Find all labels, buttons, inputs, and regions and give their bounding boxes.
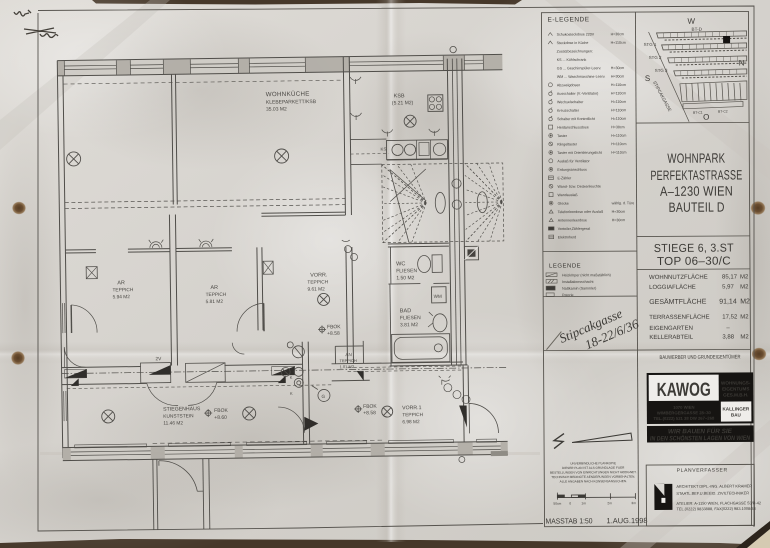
svg-text:TEL.(0222) 521 38 DW 267–268: TEL.(0222) 521 38 DW 267–268 bbox=[654, 416, 715, 421]
svg-text:H=110cm: H=110cm bbox=[611, 100, 626, 104]
svg-text:G: G bbox=[321, 394, 325, 399]
svg-text:Schukosteckdose 220V: Schukosteckdose 220V bbox=[557, 32, 595, 36]
svg-text:Zusatzbezeichnungen:: Zusatzbezeichnungen: bbox=[557, 49, 593, 53]
svg-text:Telefonleerdose oder Auslaß: Telefonleerdose oder Auslaß bbox=[558, 210, 604, 214]
svg-text:BT-D: BT-D bbox=[692, 27, 703, 32]
svg-text:ARCHITEKT DIPL.-ING. ALBERT KR: ARCHITEKT DIPL.-ING. ALBERT KRAMER bbox=[676, 483, 752, 488]
svg-text:TEPPICH: TEPPICH bbox=[206, 292, 227, 298]
svg-text:H=30cm: H=30cm bbox=[611, 125, 625, 129]
svg-text:WOHNUNGS-: WOHNUNGS- bbox=[721, 380, 751, 385]
svg-text:A–1230 WIEN: A–1230 WIEN bbox=[660, 183, 733, 198]
svg-text:KS ... Kühlschrank: KS ... Kühlschrank bbox=[557, 58, 587, 62]
svg-text:H=110cm: H=110cm bbox=[611, 41, 626, 45]
svg-text:EIGENGARTEN: EIGENGARTEN bbox=[649, 326, 693, 332]
svg-text:E-LEGENDE: E-LEGENDE bbox=[547, 16, 589, 23]
svg-text:PERFEKTASTRASSE: PERFEKTASTRASSE bbox=[650, 167, 742, 183]
svg-text:0: 0 bbox=[569, 501, 571, 505]
svg-text:H=30cm: H=30cm bbox=[612, 210, 626, 214]
svg-text:50cm: 50cm bbox=[553, 502, 561, 506]
svg-text:E-Zähler: E-Zähler bbox=[557, 176, 572, 180]
svg-text:GS ... Geschirrspüler-Leerv.: GS ... Geschirrspüler-Leerv. bbox=[557, 66, 601, 70]
svg-text:5.94 M2: 5.94 M2 bbox=[113, 294, 131, 300]
svg-text:Taster mit Orientierungslicht: Taster mit Orientierungslicht bbox=[557, 151, 602, 155]
svg-text:3,88: 3,88 bbox=[722, 334, 734, 340]
svg-text:Elektroherd: Elektroherd bbox=[558, 235, 576, 239]
svg-text:H=110cm: H=110cm bbox=[611, 117, 626, 121]
svg-text:WIMBERGERGASSE 28–30: WIMBERGERGASSE 28–30 bbox=[657, 410, 712, 415]
svg-text:BAU: BAU bbox=[731, 412, 742, 417]
svg-text:Auslaß für Ventilator: Auslaß für Ventilator bbox=[557, 159, 590, 163]
svg-text:91,14: 91,14 bbox=[719, 298, 737, 305]
svg-text:K: K bbox=[290, 375, 293, 380]
svg-text:VORR.1: VORR.1 bbox=[402, 405, 422, 411]
svg-text:35.03 M2: 35.03 M2 bbox=[266, 106, 287, 112]
svg-text:Klingeltaster: Klingeltaster bbox=[557, 142, 578, 146]
svg-text:WOHNNUTZFLÄCHE: WOHNNUTZFLÄCHE bbox=[649, 274, 708, 281]
svg-text:(5.21 M2): (5.21 M2) bbox=[392, 100, 414, 106]
svg-text:KUNSTSTEIN: KUNSTSTEIN bbox=[163, 413, 194, 419]
svg-text:+8.58: +8.58 bbox=[363, 410, 376, 416]
svg-text:Heizkörper (nicht maßstäblich): Heizkörper (nicht maßstäblich) bbox=[562, 273, 611, 277]
svg-text:O: O bbox=[703, 113, 709, 122]
svg-text:85,17: 85,17 bbox=[722, 274, 738, 280]
svg-text:2m: 2m bbox=[607, 501, 612, 505]
svg-text:FBOK: FBOK bbox=[327, 324, 341, 330]
svg-text:1070 WIEN: 1070 WIEN bbox=[673, 405, 694, 410]
svg-text:H=30cm: H=30cm bbox=[611, 66, 625, 70]
svg-text:GES.M.B.H.: GES.M.B.H. bbox=[723, 392, 748, 397]
svg-text:STIEGENHAUS: STIEGENHAUS bbox=[163, 406, 201, 413]
svg-text:BAUWERBER UND GRUNDEIGENTÜME: BAUWERBER UND GRUNDEIGENTÜMER bbox=[660, 353, 741, 360]
svg-text:17,52: 17,52 bbox=[722, 314, 738, 320]
svg-text:LOGGIAFLÄCHE: LOGGIAFLÄCHE bbox=[649, 284, 696, 291]
svg-text:WOHNKÜCHE: WOHNKÜCHE bbox=[266, 91, 310, 99]
svg-text:Verteiler,Zählergerat: Verteiler,Zählergerat bbox=[558, 227, 590, 231]
svg-text:11.46 M2: 11.46 M2 bbox=[163, 420, 183, 426]
svg-text:BT-C2: BT-C2 bbox=[718, 110, 728, 114]
svg-text:H=110cm: H=110cm bbox=[611, 142, 626, 146]
svg-text:H=110cm: H=110cm bbox=[611, 134, 626, 138]
svg-text:K: K bbox=[290, 391, 293, 396]
svg-text:Wandauslaß: Wandauslaß bbox=[558, 193, 579, 197]
svg-text:6.98 M2: 6.98 M2 bbox=[402, 419, 420, 425]
svg-text:PLANVERFASSER: PLANVERFASSER bbox=[677, 468, 728, 474]
svg-text:TEPPICH: TEPPICH bbox=[339, 358, 357, 363]
svg-text:Naßkamin (Sammler): Naßkamin (Sammler) bbox=[562, 286, 596, 290]
svg-text:Installationsschacht: Installationsschacht bbox=[562, 280, 593, 284]
svg-text:STIEGE 6, 3.ST: STIEGE 6, 3.ST bbox=[654, 242, 734, 254]
svg-text:ALLE ANGABEN NACH KONSENSANSUC: ALLE ANGABEN NACH KONSENSANSUCHEN. bbox=[560, 479, 627, 483]
svg-text:3.81 M2: 3.81 M2 bbox=[400, 322, 418, 328]
svg-text:KSB: KSB bbox=[394, 93, 405, 99]
svg-text:1m: 1m bbox=[581, 501, 586, 505]
svg-text:WM ... Waschmaschine-Leerv.: WM ... Waschmaschine-Leerv. bbox=[557, 75, 606, 79]
svg-text:FBOK: FBOK bbox=[214, 408, 228, 414]
svg-text:Steckdose in Küche: Steckdose in Küche bbox=[557, 41, 589, 45]
svg-text:H=110cm: H=110cm bbox=[611, 108, 626, 112]
svg-text:1.01 M2: 1.01 M2 bbox=[340, 364, 355, 369]
svg-text:GESÄMTFLÄCHE: GESÄMTFLÄCHE bbox=[649, 298, 707, 306]
svg-text:BT-C1: BT-C1 bbox=[693, 111, 703, 115]
svg-text:KELLERABTEIL: KELLERABTEIL bbox=[649, 335, 693, 341]
svg-text:W: W bbox=[687, 17, 695, 26]
svg-text:KAWOG: KAWOG bbox=[657, 380, 711, 401]
svg-text:M2: M2 bbox=[740, 284, 749, 290]
svg-text:5.81 M2: 5.81 M2 bbox=[206, 299, 224, 305]
svg-text:Wand- bzw. Deckenleuchte: Wand- bzw. Deckenleuchte bbox=[557, 184, 600, 188]
svg-text:H=110cm: H=110cm bbox=[611, 91, 626, 95]
svg-text:TERRASSENFLÄCHE: TERRASSENFLÄCHE bbox=[649, 314, 709, 321]
svg-text:BAD: BAD bbox=[400, 308, 412, 314]
svg-text:M2: M2 bbox=[740, 334, 749, 340]
svg-text:TOP 06–30/C: TOP 06–30/C bbox=[657, 256, 731, 268]
svg-text:M2: M2 bbox=[740, 298, 750, 305]
svg-text:Abzweigdosen: Abzweigdosen bbox=[557, 83, 580, 87]
svg-text:Herdanschlussdose: Herdanschlussdose bbox=[557, 125, 589, 129]
svg-text:TEL.(0222) 9833888, FAX(0222): TEL.(0222) 9833888, FAX(0222) 983.1008/3… bbox=[676, 506, 755, 511]
svg-text:TEPPICH: TEPPICH bbox=[112, 287, 133, 293]
svg-text:+8.60: +8.60 bbox=[214, 415, 227, 421]
svg-text:AR: AR bbox=[210, 285, 218, 291]
svg-text:1.50 M2: 1.50 M2 bbox=[396, 275, 414, 281]
svg-text:wählg. d. Türe: wählg. d. Türe bbox=[612, 201, 635, 205]
svg-text:H=110cm: H=110cm bbox=[611, 151, 626, 155]
svg-text:M2: M2 bbox=[740, 314, 749, 320]
svg-text:5,97: 5,97 bbox=[722, 284, 734, 290]
svg-text:Glocke: Glocke bbox=[558, 202, 569, 206]
svg-text:H=30cm: H=30cm bbox=[611, 32, 625, 36]
svg-text:WC: WC bbox=[396, 261, 405, 267]
svg-text:KS: KS bbox=[380, 147, 386, 152]
svg-text:TEPPICH: TEPPICH bbox=[307, 279, 328, 285]
svg-text:MASSTAB 1:50: MASSTAB 1:50 bbox=[546, 516, 593, 525]
svg-text:H=30cm: H=30cm bbox=[612, 218, 626, 222]
svg-text:AR: AR bbox=[117, 280, 125, 286]
svg-text:FBOK: FBOK bbox=[363, 404, 377, 410]
svg-text:Erdungsanschluss: Erdungsanschluss bbox=[557, 168, 587, 172]
svg-text:VORR.: VORR. bbox=[310, 272, 327, 278]
svg-text:AN: AN bbox=[345, 352, 351, 357]
svg-text:Taster: Taster bbox=[557, 134, 568, 138]
svg-text:+8.58: +8.58 bbox=[327, 331, 340, 337]
svg-text:WM: WM bbox=[434, 294, 442, 299]
svg-text:BAUTEIL D: BAUTEIL D bbox=[669, 200, 725, 215]
svg-text:FLIESEN: FLIESEN bbox=[396, 268, 417, 274]
svg-text:2V: 2V bbox=[155, 356, 162, 362]
svg-text:Wechselschalter: Wechselschalter bbox=[557, 100, 584, 104]
svg-text:TEPPICH: TEPPICH bbox=[402, 412, 423, 418]
svg-text:KLEBEPARKETT/KSB: KLEBEPARKETT/KSB bbox=[266, 99, 317, 106]
svg-text:H=30cm: H=30cm bbox=[611, 75, 625, 79]
svg-text:M2: M2 bbox=[740, 274, 749, 280]
svg-text:Antennenleerdose: Antennenleerdose bbox=[558, 218, 587, 222]
svg-text:H=110cm: H=110cm bbox=[611, 83, 626, 87]
svg-text:FLIESEN: FLIESEN bbox=[400, 315, 421, 321]
svg-text:EIGENTUMS: EIGENTUMS bbox=[722, 386, 749, 391]
svg-text:STAATL.BEF.U.BEEID. ZIVILTECHN: STAATL.BEF.U.BEEID. ZIVILTECHNIKER bbox=[676, 490, 749, 495]
svg-text:KALLINGER: KALLINGER bbox=[722, 406, 750, 411]
svg-text:Ausschalter (V.-Ventilator): Ausschalter (V.-Ventilator) bbox=[557, 92, 598, 96]
svg-text:3m: 3m bbox=[631, 501, 636, 505]
svg-text:S: S bbox=[645, 74, 650, 83]
svg-text:9.61 M2: 9.61 M2 bbox=[307, 286, 325, 292]
svg-text:1.AUG.1998: 1.AUG.1998 bbox=[607, 516, 648, 525]
svg-text:Schalter mit Kontrollicht: Schalter mit Kontrollicht bbox=[557, 117, 595, 121]
svg-text:WOHNPARK: WOHNPARK bbox=[667, 151, 725, 166]
svg-text:LEGENDE: LEGENDE bbox=[549, 263, 581, 269]
svg-text:Kreuzschalter: Kreuzschalter bbox=[557, 109, 580, 113]
svg-text:WIR BAUEN FÜR SIE: WIR BAUEN FÜR SIE bbox=[668, 426, 733, 435]
